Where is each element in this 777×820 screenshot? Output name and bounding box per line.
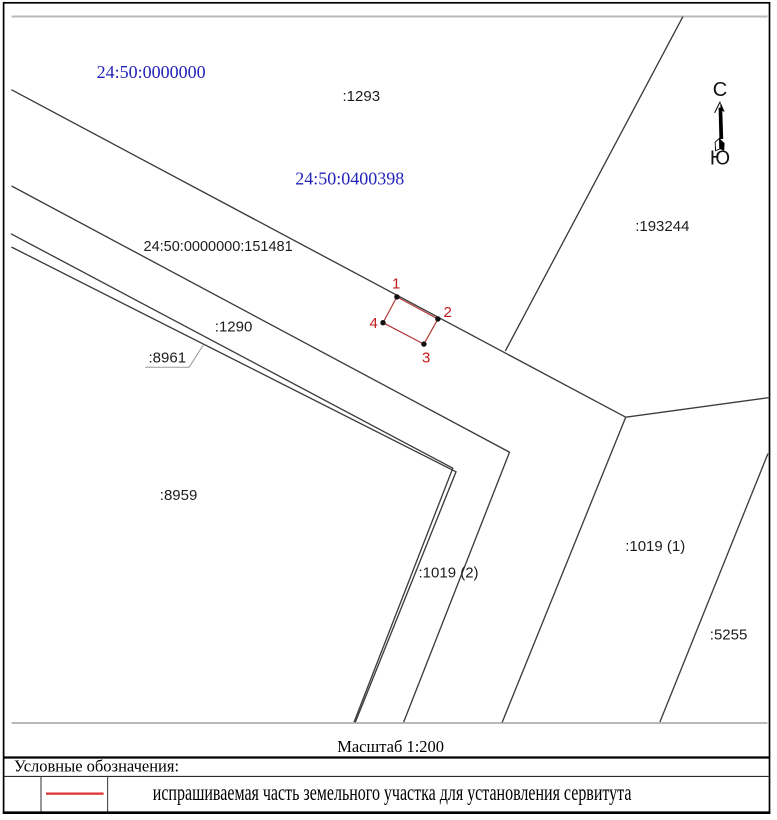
svg-text:1: 1 bbox=[392, 276, 400, 293]
svg-text:3: 3 bbox=[422, 350, 430, 367]
svg-text::5255: :5255 bbox=[710, 626, 748, 643]
svg-text::1019 (1): :1019 (1) bbox=[625, 538, 685, 555]
svg-text:испрашиваемая часть земельного: испрашиваемая часть земельного участка д… bbox=[153, 780, 632, 805]
svg-text::1293: :1293 bbox=[343, 88, 381, 105]
svg-text:Масштаб 1:200: Масштаб 1:200 bbox=[337, 737, 444, 756]
svg-text::1019 (2): :1019 (2) bbox=[419, 565, 479, 582]
svg-text:2: 2 bbox=[444, 304, 452, 321]
svg-text:24:50:0400398: 24:50:0400398 bbox=[295, 169, 404, 189]
svg-text:Ю: Ю bbox=[710, 148, 730, 170]
svg-text:24:50:0000000:151481: 24:50:0000000:151481 bbox=[144, 239, 293, 255]
svg-text:4: 4 bbox=[370, 315, 378, 332]
svg-text::8959: :8959 bbox=[160, 487, 198, 504]
svg-text:Условные обозначения:: Условные обозначения: bbox=[14, 757, 179, 776]
svg-text::1290: :1290 bbox=[215, 319, 253, 336]
svg-text:С: С bbox=[713, 79, 727, 101]
svg-text:24:50:0000000: 24:50:0000000 bbox=[97, 62, 206, 82]
svg-text::193244: :193244 bbox=[635, 218, 689, 235]
svg-text::8961: :8961 bbox=[149, 350, 187, 367]
